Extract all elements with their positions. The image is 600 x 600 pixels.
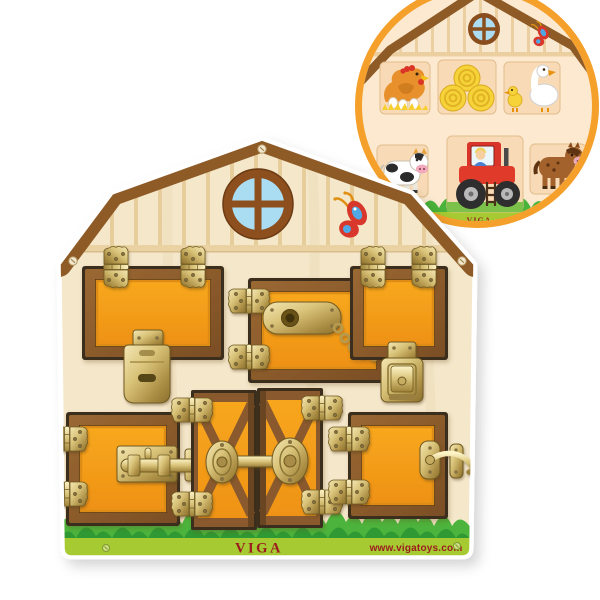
brand-text: VIGA	[235, 541, 283, 557]
round-window-icon	[223, 169, 293, 239]
website-text: www.vigatoys.com	[369, 543, 463, 554]
product-photo: VIGA	[0, 0, 600, 600]
latch-board: VIGA www.vigatoys.com	[0, 0, 600, 600]
